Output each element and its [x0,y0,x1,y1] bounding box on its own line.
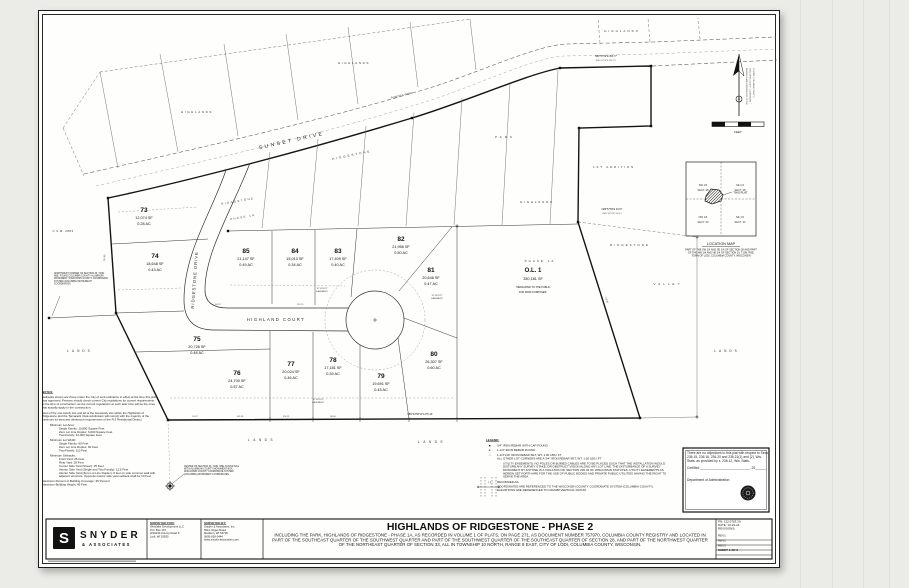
locmap-sw-section: SECT. 33 [698,220,710,224]
filled-circle-icon: ● [486,449,494,452]
monument-markers [48,65,698,422]
cert-body: There are no objections to this plat wit… [687,452,770,464]
svg-text:21,147 SF: 21,147 SF [237,257,255,261]
svg-text:15,013 SF: 15,013 SF [286,257,304,261]
sheet-title: HIGHLANDS OF RIDGESTONE - PHASE 2 [268,521,712,533]
dim-bottom-1: 61.87 [192,416,198,418]
lot-74: 7418,648 SF0.43 AC [146,253,164,272]
north-note-line2: WISCONSIN COUNTY COORDINATE [749,68,752,103]
locmap-se-section: SECT. 33 [735,220,747,224]
svg-text:"DEDICATED TO THE PUBLIC: "DEDICATED TO THE PUBLIC [516,286,551,289]
lot-lines [49,224,578,419]
svg-text:0.45 AC: 0.45 AC [374,388,388,392]
lot-80: 8026,307 SF0.60 AC [425,351,443,370]
sheet-description: INCLUDING THE PARK, HIGHLANDS OF RIDGEST… [270,533,710,547]
scale-bar: FEET [712,122,764,134]
adj-highlands-2: HIGHLANDS [338,61,370,65]
parentheses-symbol: ( ) [486,481,494,484]
bearing-bottom: S89°33'56"W 1175.14' [407,412,433,416]
svg-text:84: 84 [291,248,299,255]
ridgestone-drive-road [184,163,349,331]
notes-g1-item: Two-Family: 12,000 Square Feet [59,434,157,437]
bearing-jog-recorded: (N89°13'13"E 33.41') [602,213,622,215]
svg-text:EASEMENT: EASEMENT [316,290,328,293]
svg-text:77: 77 [287,361,295,368]
lot-83: 8317,409 SF0.40 AC [329,248,347,267]
state-seal [741,486,756,501]
lot-84: 8415,013 SF0.34 AC [286,248,304,267]
adj-park: PARK [495,135,515,139]
svg-text:0.47 AC: 0.47 AC [424,282,438,286]
svg-text:79: 79 [377,373,385,380]
location-map-title: LOCATION MAP [707,242,736,246]
location-map: THIS PLAT SW 1/4 SECT. 28 SE 1/4 SECT. 2… [686,162,756,247]
lot-79: 7919,691 SF0.45 AC [372,373,390,392]
svg-text:0.43 AC: 0.43 AC [148,268,162,272]
legend-block: LEGEND: ■3/4" IRON REBAR WITH CAP FOUND … [486,439,672,494]
svg-text:76: 76 [233,370,241,377]
lot-78: 7817,181 SF0.39 AC [324,357,342,376]
north-arrow: BEARINGS ARE REFERENCED TO THE WISCONSIN… [733,54,755,116]
adj-lands-1: LANDS [67,349,93,353]
svg-text:17,409 SF: 17,409 SF [329,257,347,261]
svg-text:21,956 SF: 21,956 SF [392,245,410,249]
adj-lands-2: LANDS [248,438,276,442]
svg-text:19,691 SF: 19,691 SF [372,382,390,386]
locmap-se-quarter: NE 1/4 [736,215,744,219]
svg-text:0.39 AC: 0.39 AC [326,372,340,376]
street-sunset-drive: SUNSET DRIVE [258,131,325,151]
plat-sheet-page: SUNSET DRIVE RIDGESTONE DRIVE HIGHLAND C… [0,0,909,588]
surveyed-for-block: SURVEYED FOR: Westlake Development LLC P… [150,522,200,539]
adj-phase1a-1: PHASE 1A [230,213,256,221]
adj-ridgestone-1: RIDGESTONE [332,149,372,161]
svg-text:78: 78 [329,357,337,364]
notes-paragraph-2: Most of the one-family lots and all of t… [42,412,157,422]
svg-text:12' UTILITY: 12' UTILITY [431,295,443,297]
adj-highlands-3: HIGHLANDS [604,29,640,33]
svg-text:0.50 AC: 0.50 AC [394,251,408,255]
snyder-logo-sub: & ASSOCIATES [82,542,131,547]
lot-82: 8221,956 SF0.50 AC [392,236,410,255]
corner-note-center: CENTER OF SECTION 33, T10N, R8E, FOUND N… [184,465,242,475]
north-note-line3: SYSTEM (COLUMBIA COUNTY) [752,68,755,98]
cert-department: Department of Administration [687,479,770,483]
scale-feet-label: FEET [734,130,742,134]
adj-ridgestone-2: RIDGESTONE [221,196,255,206]
bearing-jog: N89°57'59"E 33.97' [602,208,623,211]
plat-drawing: SUNSET DRIVE RIDGESTONE DRIVE HIGHLAND C… [0,0,909,588]
legend-item-1: 3/4" IRON REBAR WITH CAP FOUND [497,444,672,447]
svg-text:EASEMENT: EASEMENT [431,297,443,300]
dim-bottom-2: 101.58 [237,416,244,418]
svg-text:0.60 AC: 0.60 AC [427,366,441,370]
svg-text:80: 80 [430,351,438,358]
adj-lands-4: LANDS [714,349,740,353]
notes-tail-2: Maximum Building Height: 45 Feet [42,484,157,487]
dim-bottom-4: 88.00 [330,416,336,418]
snyder-logo-mark: S [53,527,75,549]
svg-text:18,648 SF: 18,648 SF [146,262,164,266]
notes-title: NOTES: [42,391,157,394]
lot-73: 7312,074 SF0.28 AC [135,207,153,226]
legend-easement-note: UTILITY EASEMENTS: NO POLES OR BURIED CA… [503,462,672,479]
svg-text:85: 85 [242,248,250,255]
svg-text:O.L. 1: O.L. 1 [525,268,542,274]
cert-certified-line: Certified ___________________________, 2… [687,467,770,471]
notes-block: NOTES: Setbacks shown are those under th… [42,391,157,489]
certification-text: There are no objections to this plat wit… [684,449,773,487]
locmap-nw-section: SECT. 28 [698,188,710,192]
adj-ridgestone-3: RIDGESTONE [610,243,650,247]
svg-text:0.57 AC: 0.57 AC [230,385,244,389]
adj-valley: VALLEY [653,282,682,286]
surveyed-by-line: www.snyder-associates.com [204,538,261,541]
adj-highlands-1: HIGHLANDS [181,110,213,114]
locmap-ne-section: SECT. 28 [735,188,747,192]
notes-g2-item: Two-Family: 110 Feet [59,450,157,453]
location-map-caption: PART OF THE SW 1/4 AND SE 1/4 OF SECTION… [684,249,758,258]
svg-text:20,646 SF: 20,646 SF [422,276,440,280]
svg-text:0.48 AC: 0.48 AC [190,351,204,355]
svg-text:0.40 AC: 0.40 AC [331,263,345,267]
street-ridgestone-drive: RIDGESTONE DRIVE [190,251,199,309]
dim-west: 124.98 [104,254,107,262]
svg-text:0.49 AC: 0.49 AC [239,263,253,267]
surveyed-by-block: SURVEYED BY: Snyder & Associates, Inc. 5… [204,522,261,542]
dim-east-slant: 178.30 [604,297,608,305]
dim-bottom-3: 118.13 [283,416,290,418]
lot-81: 8120,646 SF0.47 AC [422,267,440,286]
lot-labels: 7312,074 SF0.28 AC 7418,648 SF0.43 AC 75… [135,207,550,392]
svg-text:0.46 AC: 0.46 AC [284,376,298,380]
adj-lands-3: LANDS [418,440,446,444]
corner-note-nw: NORTHWEST CORNER OF SECTION 33, T10N, R8… [54,272,108,285]
lot-77: 7720,024 SF0.46 AC [282,361,300,380]
legend-coordinates-note: COORDINATES ARE REFERENCED TO THE WISCON… [497,486,672,493]
adj-highlands-4: HIGHLANDS [520,200,554,204]
info-table: PN: 122.0703.30 DATE: 10-22-24 REVISIONS… [717,520,772,552]
legend-item-2: 1-1/4" IRON REBAR FOUND [497,449,672,452]
svg-text:74: 74 [151,253,159,260]
svg-text:12' UTILITY: 12' UTILITY [316,288,328,290]
locmap-ne-quarter: SE 1/4 [736,183,744,187]
plat-boundary [108,66,651,420]
dim-court-2: 176.73 [297,304,304,306]
svg-text:17,181 SF: 17,181 SF [324,366,342,370]
notes-paragraph-1: Setbacks shown are those under the City … [42,396,157,410]
svg-text:81: 81 [427,267,435,274]
sheet-number: SHEET 1 OF 2 [717,547,772,552]
adj-first-addition: 1ST ADDITION [593,165,635,169]
svg-text:73: 73 [140,207,148,214]
filename-text-illegible [48,561,136,562]
outlot-1: O.L. 1 330,181 SF "DEDICATED TO THE PUBL… [516,268,551,294]
svg-text:0.34 AC: 0.34 AC [288,263,302,267]
curve-data: R=487.50' L=233.62' [391,91,414,99]
legend-item-3b: ALL OTHER LOT CORNERS ARE A 3/4" IRON RE… [497,457,672,460]
locmap-sw-quarter: NW 1/4 [699,215,708,219]
lot-75: 7520,726 SF0.48 AC [188,336,206,355]
lot-85: 8521,147 SF0.49 AC [237,248,255,267]
filled-square-icon: ■ [486,444,494,447]
bearing-top-recorded: (N89°13'13"E 354.77') [596,60,617,62]
notes-g3-item: Interior Side Yard (Zero Lot Line Duplex… [59,472,157,479]
svg-text:12,074 SF: 12,074 SF [135,216,153,220]
easement-labels: 12' UTILITYEASEMENT 12' UTILITYEASEMENT … [312,288,443,404]
snyder-logo-name: SNYDER [80,530,141,541]
adjacent-lots-north [63,18,700,176]
svg-text:20,024 SF: 20,024 SF [282,370,300,374]
adjacent-plat-labels: HIGHLANDS HIGHLANDS HIGHLANDS HIGHLANDS … [52,29,739,444]
locmap-nw-quarter: SW 1/4 [699,183,708,187]
svg-text:330,181 SF: 330,181 SF [523,277,543,281]
bearing-top: N89°57'59"E 354.77' [595,55,618,58]
surveyed-by-label: SURVEYED BY: [204,522,261,525]
svg-text:26,307 SF: 26,307 SF [425,360,443,364]
adj-phase1a-2: PHASE 1A [525,259,556,263]
street-highland-court: HIGHLAND COURT [247,317,306,322]
svg-text:20,726 SF: 20,726 SF [188,345,206,349]
lot-76: 7624,700 SF0.57 AC [228,370,246,389]
legend-recorded-as: RECORDED AS [497,481,672,484]
svg-text:12' UTILITY: 12' UTILITY [312,399,324,401]
dim-court-1: 84.97 [215,304,221,306]
svg-text:FOR PARK PURPOSES": FOR PARK PURPOSES" [519,291,547,294]
north-note-line1: BEARINGS ARE REFERENCED TO THE [745,68,748,106]
svg-text:EASEMENT: EASEMENT [312,401,324,404]
svg-text:82: 82 [397,236,405,243]
cul-de-sac [346,291,404,349]
svg-text:75: 75 [193,336,201,343]
svg-text:83: 83 [334,248,342,255]
svg-text:0.28 AC: 0.28 AC [137,222,151,226]
legend-title: LEGEND: [486,439,672,442]
surveyed-for-label: SURVEYED FOR: [150,522,200,525]
svg-text:24,700 SF: 24,700 SF [228,379,246,383]
adj-csm: C.S.M. 2883 [52,229,73,233]
